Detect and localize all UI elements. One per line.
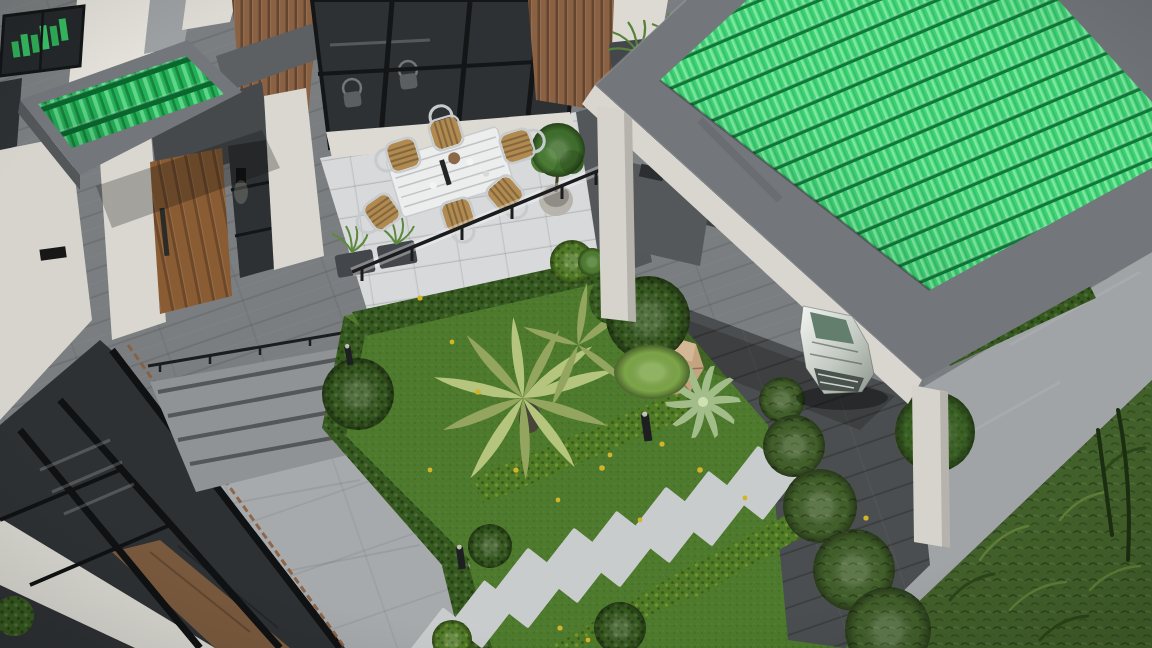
vignette — [0, 0, 1152, 648]
render-canvas: Aerial 3D architectural rendering of a m… — [0, 0, 1152, 648]
courtyard-aerial-render — [0, 0, 1152, 648]
